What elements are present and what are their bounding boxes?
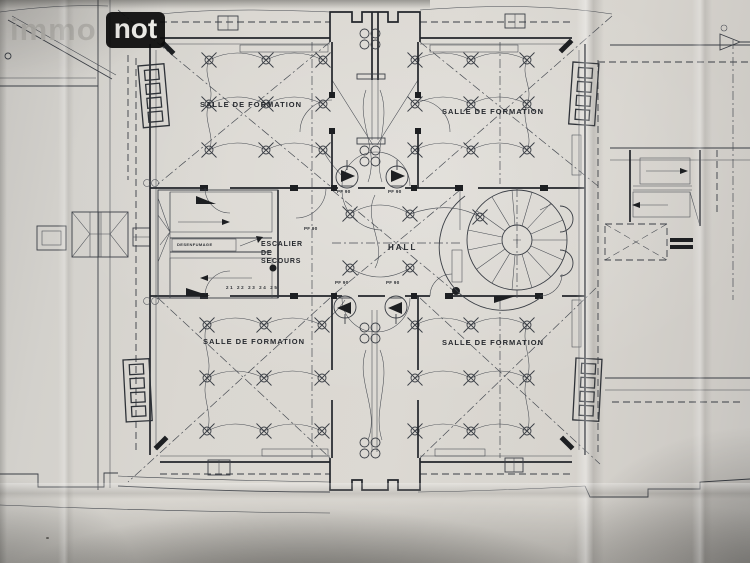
watermark-immo-text: immo bbox=[10, 12, 97, 48]
room-label-bottom-right: SALLE DE FORMATION bbox=[442, 338, 544, 347]
emergency-stair-label-line2: DE bbox=[261, 250, 303, 259]
fire-door-label: PF 90 bbox=[337, 189, 351, 194]
wall-piers bbox=[200, 92, 548, 299]
emergency-stair-label-line3: SECOURS bbox=[261, 258, 303, 267]
fire-door-label: PF 90 bbox=[388, 189, 402, 194]
paper-speck bbox=[46, 537, 49, 539]
fire-door-label: PF 90 bbox=[335, 280, 349, 285]
emergency-staircase bbox=[158, 190, 278, 298]
room-label-top-right: SALLE DE FORMATION bbox=[442, 107, 544, 116]
stair-tread-numbers: 21 22 23 24 25 bbox=[226, 285, 278, 290]
bottom-facade bbox=[0, 505, 330, 513]
fire-door-label: PF 90 bbox=[304, 226, 318, 231]
exterior-stair bbox=[632, 158, 700, 226]
emergency-stair-label-line1: ESCALIER bbox=[261, 241, 303, 250]
floor-plan-drawing bbox=[0, 0, 750, 563]
fire-door-label: PF 90 bbox=[386, 280, 400, 285]
watermark: immo not bbox=[10, 12, 165, 48]
building-outline bbox=[150, 7, 612, 490]
windows bbox=[208, 14, 525, 475]
room-label-bottom-left: SALLE DE FORMATION bbox=[203, 337, 305, 346]
hall-label: HALL bbox=[388, 243, 417, 252]
watermark-not-badge: not bbox=[106, 12, 166, 48]
emergency-stair-label: ESCALIER DE SECOURS bbox=[261, 241, 303, 267]
stair-note-label: DESENFUMAGE bbox=[177, 242, 213, 247]
room-label-top-left: SALLE DE FORMATION bbox=[200, 100, 302, 109]
photo-of-floor-plan: SALLE DE FORMATION SALLE DE FORMATION SA… bbox=[0, 0, 750, 563]
